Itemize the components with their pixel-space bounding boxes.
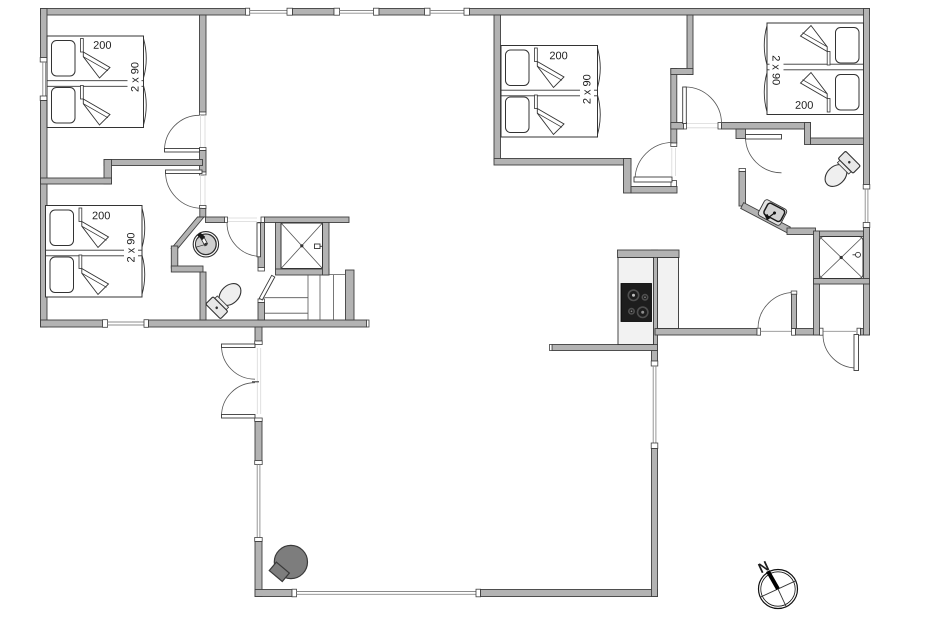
svg-text:200: 200 xyxy=(795,100,813,112)
svg-text:2 x 90: 2 x 90 xyxy=(770,55,782,85)
svg-text:200: 200 xyxy=(93,40,111,52)
svg-text:2 x 90: 2 x 90 xyxy=(130,62,142,92)
svg-text:2 x 90: 2 x 90 xyxy=(126,233,138,263)
svg-text:200: 200 xyxy=(549,50,567,62)
svg-text:200: 200 xyxy=(92,210,110,222)
svg-text:2 x 90: 2 x 90 xyxy=(582,74,594,104)
